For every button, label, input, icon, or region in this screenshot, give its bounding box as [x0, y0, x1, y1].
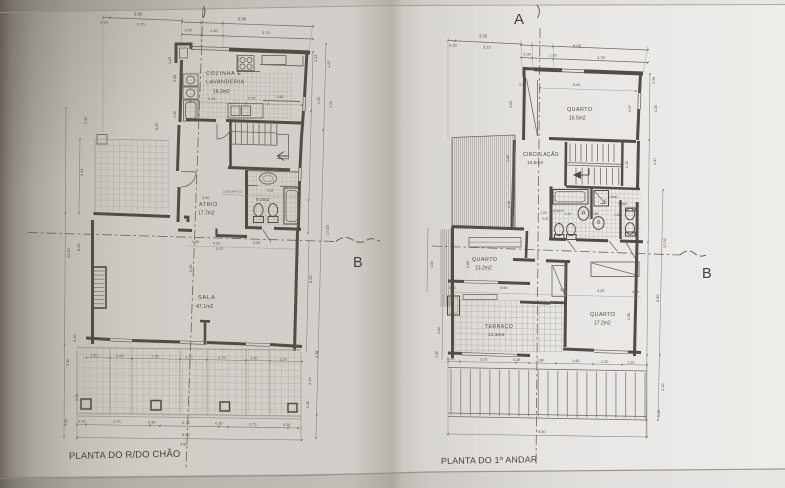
svg-text:1.80: 1.80: [537, 359, 544, 363]
svg-text:1.05: 1.05: [523, 52, 532, 57]
svg-text:0.15: 0.15: [542, 217, 548, 221]
svg-text:1.75: 1.75: [151, 354, 159, 359]
svg-text:1.35: 1.35: [614, 213, 620, 217]
svg-text:5.50: 5.50: [500, 286, 507, 290]
svg-text:1.80: 1.80: [506, 155, 510, 162]
svg-text:0.35: 0.35: [75, 394, 79, 401]
svg-text:1.20: 1.20: [540, 211, 547, 215]
svg-text:3.50: 3.50: [479, 34, 488, 39]
svg-text:12.50: 12.50: [66, 247, 71, 258]
svg-text:47.1m2: 47.1m2: [196, 304, 213, 310]
svg-text:B: B: [353, 255, 363, 271]
svg-text:1.20: 1.20: [279, 356, 287, 361]
svg-text:0.35: 0.35: [435, 351, 439, 358]
svg-text:1.20: 1.20: [317, 97, 321, 104]
svg-text:1.5m2: 1.5m2: [608, 195, 618, 199]
svg-text:1.20: 1.20: [549, 53, 558, 58]
svg-text:QUARTO: QUARTO: [590, 312, 615, 318]
svg-text:6.00: 6.00: [238, 17, 247, 22]
svg-text:0.30: 0.30: [66, 359, 70, 366]
svg-text:16.2m2: 16.2m2: [213, 89, 230, 95]
svg-text:0.30: 0.30: [78, 419, 86, 424]
svg-text:1.20: 1.20: [329, 101, 333, 108]
svg-text:2.73: 2.73: [182, 420, 190, 425]
svg-text:2.40: 2.40: [660, 383, 665, 391]
svg-text:2.16: 2.16: [267, 189, 273, 193]
svg-text:0.24: 0.24: [213, 242, 220, 246]
svg-text:0.15 0.84 0.15: 0.15 0.84 0.15: [223, 190, 243, 194]
svg-text:2.00: 2.00: [202, 196, 209, 200]
svg-text:5.40: 5.40: [573, 83, 580, 87]
svg-text:3.15: 3.15: [480, 358, 487, 362]
svg-text:8.00: 8.00: [76, 243, 81, 251]
svg-text:1.23: 1.23: [314, 55, 318, 62]
svg-text:3.14: 3.14: [79, 168, 84, 176]
svg-text:0.30: 0.30: [148, 420, 156, 425]
svg-text:13.2m2: 13.2m2: [475, 266, 492, 272]
svg-text:3.25: 3.25: [253, 241, 260, 245]
svg-text:PLANTA DO 1º ANDAR: PLANTA DO 1º ANDAR: [441, 454, 538, 466]
svg-text:1.20: 1.20: [601, 360, 608, 364]
svg-text:0.30: 0.30: [449, 43, 458, 48]
svg-text:3.56: 3.56: [627, 313, 631, 320]
svg-text:1.20: 1.20: [116, 353, 124, 358]
svg-text:0.30: 0.30: [215, 421, 223, 426]
svg-text:1.20: 1.20: [210, 28, 219, 33]
svg-text:6.00: 6.00: [656, 295, 660, 302]
svg-text:3.80: 3.80: [134, 12, 143, 17]
svg-text:1.75: 1.75: [218, 355, 226, 360]
svg-text:6.33: 6.33: [315, 351, 319, 358]
svg-text:3.46: 3.46: [507, 201, 511, 208]
svg-text:1.20: 1.20: [654, 105, 658, 112]
svg-text:1.62: 1.62: [437, 327, 441, 334]
svg-text:3.75: 3.75: [262, 30, 271, 35]
svg-text:3.15: 3.15: [483, 45, 492, 50]
svg-text:COZINHA E: COZINHA E: [206, 71, 242, 77]
svg-text:2.86: 2.86: [466, 261, 470, 268]
svg-text:1.45: 1.45: [276, 95, 283, 99]
svg-text:4.0m2: 4.0m2: [553, 209, 564, 213]
svg-text:3.07: 3.07: [628, 105, 632, 112]
svg-text:0.30: 0.30: [100, 20, 109, 25]
svg-text:3.15: 3.15: [137, 22, 146, 27]
svg-text:0.15: 0.15: [560, 288, 567, 292]
svg-text:6.39: 6.39: [308, 275, 313, 283]
svg-text:10.5m2: 10.5m2: [527, 160, 543, 166]
svg-text:5.40: 5.40: [189, 265, 193, 272]
svg-text:2.73: 2.73: [113, 419, 121, 424]
svg-text:TERRAÇO: TERRAÇO: [485, 324, 513, 330]
svg-text:1.23: 1.23: [168, 57, 172, 64]
svg-text:6.00: 6.00: [573, 44, 582, 49]
svg-text:8.00: 8.00: [155, 123, 159, 130]
svg-text:2.40: 2.40: [307, 377, 312, 385]
svg-text:LAVANDERIA: LAVANDERIA: [206, 80, 245, 86]
svg-text:0.30: 0.30: [64, 419, 68, 426]
svg-text:CIRCULAÇÃO: CIRCULAÇÃO: [523, 151, 559, 158]
svg-text:0.30: 0.30: [519, 83, 526, 87]
svg-text:3.18: 3.18: [208, 97, 215, 101]
svg-text:3.75: 3.75: [597, 55, 606, 60]
svg-text:ATRIO: ATRIO: [199, 202, 218, 208]
svg-text:2.73: 2.73: [249, 421, 257, 426]
svg-text:4.37: 4.37: [653, 158, 657, 165]
svg-text:9.50: 9.50: [182, 432, 190, 437]
svg-text:QUARTO: QUARTO: [567, 107, 592, 113]
svg-text:9.50: 9.50: [538, 429, 546, 434]
svg-text:0.30: 0.30: [84, 117, 88, 124]
svg-text:1.25: 1.25: [565, 212, 571, 216]
svg-text:1.45: 1.45: [572, 359, 579, 363]
svg-text:1.80: 1.80: [192, 240, 199, 244]
svg-text:4.03: 4.03: [430, 261, 434, 268]
svg-text:1.05: 1.05: [184, 28, 193, 33]
svg-text:0.15: 0.15: [216, 247, 223, 251]
svg-text:B: B: [702, 266, 712, 282]
svg-text:17.00: 17.00: [662, 237, 667, 248]
svg-text:9.2m2: 9.2m2: [256, 197, 270, 203]
svg-text:3.25: 3.25: [597, 289, 604, 293]
svg-text:1.23: 1.23: [327, 61, 331, 68]
svg-text:0.30: 0.30: [657, 410, 661, 417]
svg-text:0.75: 0.75: [248, 97, 255, 101]
svg-text:16.5m2: 16.5m2: [569, 116, 586, 122]
svg-text:4.02: 4.02: [509, 101, 513, 108]
svg-text:0.30: 0.30: [306, 401, 310, 408]
svg-text:1.20: 1.20: [185, 354, 193, 359]
svg-text:1.20: 1.20: [250, 356, 258, 361]
svg-text:A: A: [514, 11, 524, 28]
svg-text:1.20: 1.20: [90, 353, 98, 358]
svg-text:PLANTA DO R/DO CHÃO: PLANTA DO R/DO CHÃO: [69, 448, 181, 461]
svg-text:1.5m2: 1.5m2: [618, 202, 627, 206]
svg-text:1.33: 1.33: [652, 77, 656, 84]
svg-text:17.7m2: 17.7m2: [198, 211, 215, 217]
svg-text:0.35: 0.35: [447, 357, 454, 361]
svg-text:0.30: 0.30: [283, 422, 291, 427]
svg-text:0.35: 0.35: [513, 358, 520, 362]
svg-text:1.20: 1.20: [627, 360, 634, 364]
svg-text:12.3m2: 12.3m2: [488, 332, 505, 338]
svg-text:SALA: SALA: [198, 295, 216, 301]
svg-text:QUARTO: QUARTO: [472, 257, 497, 263]
svg-text:2.40: 2.40: [72, 334, 77, 342]
svg-text:1.20: 1.20: [173, 111, 177, 118]
svg-text:17.2m2: 17.2m2: [594, 321, 611, 327]
svg-text:17.00: 17.00: [325, 224, 330, 235]
svg-text:0.30: 0.30: [632, 290, 639, 294]
svg-text:3.58: 3.58: [173, 75, 177, 82]
svg-text:0.55: 0.55: [592, 212, 598, 216]
svg-text:2.20: 2.20: [625, 161, 629, 168]
